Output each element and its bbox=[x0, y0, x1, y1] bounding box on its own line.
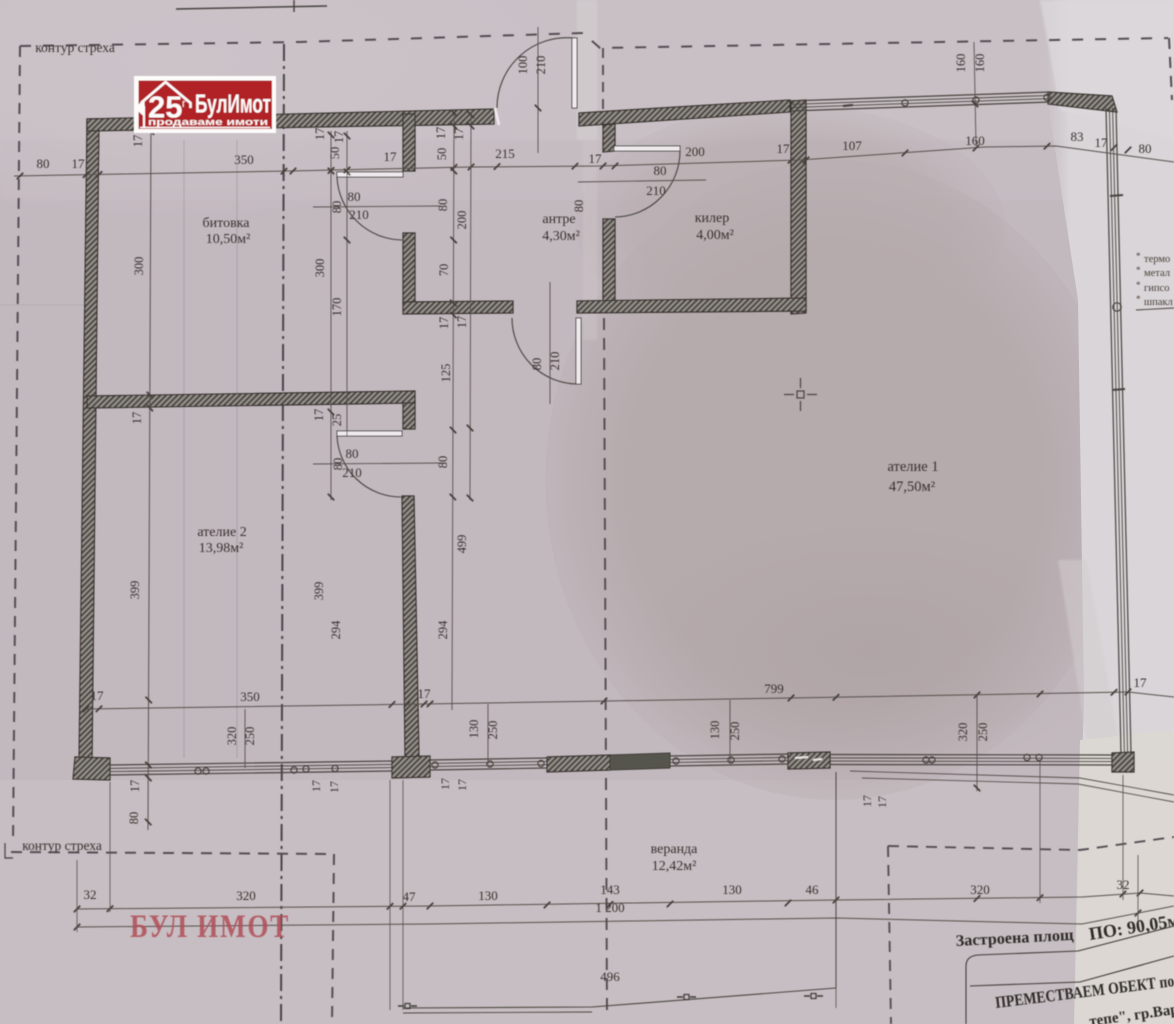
svg-text:80: 80 bbox=[1139, 141, 1152, 156]
svg-text:350: 350 bbox=[234, 152, 254, 167]
svg-text:метал: метал bbox=[1144, 268, 1170, 279]
svg-text:399: 399 bbox=[312, 582, 326, 601]
svg-text:799: 799 bbox=[764, 681, 784, 696]
svg-text:ателие 2: ателие 2 bbox=[197, 525, 246, 540]
svg-text:47,50м²: 47,50м² bbox=[889, 479, 936, 495]
svg-text:1 200: 1 200 bbox=[595, 900, 624, 915]
svg-text:46: 46 bbox=[806, 882, 820, 897]
svg-text:130: 130 bbox=[722, 882, 742, 897]
svg-text:антре: антре bbox=[542, 212, 575, 227]
svg-text:160: 160 bbox=[954, 54, 968, 73]
svg-text:80: 80 bbox=[127, 812, 141, 825]
svg-text:продаваме имоти: продаваме имоти bbox=[148, 117, 268, 128]
svg-text:17: 17 bbox=[312, 409, 326, 422]
svg-text:17: 17 bbox=[91, 688, 105, 703]
svg-text:17: 17 bbox=[777, 141, 791, 156]
svg-text:320: 320 bbox=[970, 882, 990, 897]
svg-text:17: 17 bbox=[1095, 135, 1109, 150]
svg-text:*: * bbox=[1136, 280, 1141, 290]
svg-text:17: 17 bbox=[589, 151, 603, 166]
svg-text:17: 17 bbox=[438, 778, 452, 790]
svg-text:300: 300 bbox=[132, 257, 146, 276]
svg-text:210: 210 bbox=[534, 56, 548, 75]
svg-text:210: 210 bbox=[349, 207, 369, 222]
svg-text:17: 17 bbox=[455, 779, 469, 791]
svg-text:130: 130 bbox=[478, 888, 498, 903]
svg-text:17: 17 bbox=[875, 796, 889, 808]
svg-text:210: 210 bbox=[548, 352, 562, 371]
svg-text:32: 32 bbox=[84, 887, 97, 902]
svg-text:контур стреха: контур стреха bbox=[35, 40, 115, 55]
svg-text:200: 200 bbox=[455, 211, 469, 230]
svg-text:*: * bbox=[1136, 294, 1141, 304]
svg-text:17: 17 bbox=[72, 156, 86, 171]
svg-text:17: 17 bbox=[452, 128, 466, 141]
svg-text:80: 80 bbox=[572, 200, 586, 213]
svg-text:80: 80 bbox=[436, 456, 450, 469]
svg-text:г: г bbox=[182, 98, 186, 110]
svg-text:13,98м²: 13,98м² bbox=[199, 541, 244, 556]
svg-text:499: 499 bbox=[455, 535, 469, 554]
svg-text:320: 320 bbox=[956, 723, 970, 742]
svg-text:130: 130 bbox=[467, 720, 481, 739]
svg-text:294: 294 bbox=[436, 620, 450, 640]
svg-text:17: 17 bbox=[384, 149, 398, 164]
svg-text:80: 80 bbox=[436, 199, 450, 212]
svg-text:17: 17 bbox=[128, 780, 142, 793]
svg-text:47: 47 bbox=[403, 889, 417, 904]
svg-text:100: 100 bbox=[516, 56, 530, 75]
svg-text:шпакл: шпакл bbox=[1144, 297, 1173, 308]
svg-text:контур стреха: контур стреха bbox=[22, 838, 102, 853]
svg-text:107: 107 bbox=[842, 138, 862, 153]
svg-text:17: 17 bbox=[332, 131, 346, 144]
svg-text:160: 160 bbox=[973, 54, 987, 73]
svg-text:ателие 1: ателие 1 bbox=[887, 459, 938, 475]
svg-text:4,00м²: 4,00м² bbox=[696, 228, 734, 243]
svg-text:17: 17 bbox=[309, 780, 323, 792]
svg-text:80: 80 bbox=[654, 163, 667, 178]
svg-text:250: 250 bbox=[243, 727, 257, 746]
svg-text:50: 50 bbox=[328, 147, 342, 160]
svg-text:143: 143 bbox=[600, 882, 620, 897]
svg-text:гипсо: гипсо bbox=[1144, 283, 1169, 294]
svg-text:496: 496 bbox=[600, 969, 620, 984]
svg-text:БУЛ ИМОТ: БУЛ ИМОТ bbox=[130, 909, 290, 945]
svg-text:210: 210 bbox=[646, 183, 666, 198]
svg-text:10,50м²: 10,50м² bbox=[206, 232, 251, 247]
svg-text:83: 83 bbox=[1071, 129, 1084, 144]
svg-text:250: 250 bbox=[486, 721, 500, 740]
svg-text:294: 294 bbox=[329, 620, 343, 640]
svg-text:160: 160 bbox=[965, 133, 985, 148]
svg-text:320: 320 bbox=[225, 727, 239, 746]
svg-text:215: 215 bbox=[495, 146, 515, 161]
svg-text:250: 250 bbox=[728, 722, 742, 741]
svg-text:17: 17 bbox=[327, 781, 341, 793]
svg-text:17: 17 bbox=[434, 127, 448, 140]
svg-text:12,42м²: 12,42м² bbox=[652, 859, 697, 874]
svg-text:210: 210 bbox=[342, 465, 362, 480]
svg-text:70: 70 bbox=[437, 264, 451, 277]
svg-text:*: * bbox=[1136, 251, 1141, 261]
svg-text:80: 80 bbox=[331, 458, 345, 471]
svg-text:80: 80 bbox=[530, 358, 544, 371]
svg-text:399: 399 bbox=[128, 581, 142, 600]
svg-text:17: 17 bbox=[131, 135, 145, 148]
svg-text:килер: килер bbox=[695, 211, 730, 226]
svg-text:4,30м²: 4,30м² bbox=[542, 229, 580, 244]
svg-text:80: 80 bbox=[346, 446, 359, 461]
svg-text:300: 300 bbox=[313, 259, 327, 278]
svg-text:320: 320 bbox=[236, 888, 256, 903]
svg-text:80: 80 bbox=[330, 201, 344, 214]
svg-text:17: 17 bbox=[313, 128, 327, 141]
svg-text:17: 17 bbox=[437, 317, 451, 330]
svg-text:термо: термо bbox=[1144, 254, 1170, 265]
svg-text:*: * bbox=[1136, 265, 1141, 275]
svg-text:17: 17 bbox=[455, 316, 469, 329]
svg-text:200: 200 bbox=[685, 144, 705, 159]
svg-text:80: 80 bbox=[37, 156, 50, 171]
svg-text:БулИмот: БулИмот bbox=[195, 89, 271, 119]
svg-text:50: 50 bbox=[435, 148, 449, 161]
svg-text:17: 17 bbox=[130, 412, 144, 425]
svg-text:80: 80 bbox=[348, 189, 361, 204]
svg-text:17: 17 bbox=[1134, 675, 1148, 690]
svg-text:170: 170 bbox=[330, 298, 344, 317]
svg-text:17: 17 bbox=[418, 686, 432, 701]
svg-text:веранда: веранда bbox=[651, 842, 699, 857]
svg-text:125: 125 bbox=[439, 364, 453, 383]
svg-text:130: 130 bbox=[708, 721, 722, 740]
svg-text:250: 250 bbox=[976, 723, 990, 742]
svg-text:350: 350 bbox=[240, 689, 260, 704]
svg-text:битовка: битовка bbox=[203, 216, 251, 231]
svg-text:25: 25 bbox=[330, 414, 344, 427]
svg-text:17: 17 bbox=[860, 795, 874, 807]
